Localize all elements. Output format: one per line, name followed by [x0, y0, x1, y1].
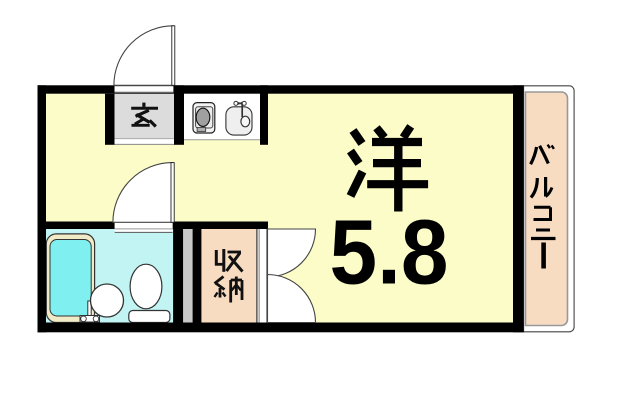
svg-text:5.8: 5.8 [330, 202, 449, 304]
